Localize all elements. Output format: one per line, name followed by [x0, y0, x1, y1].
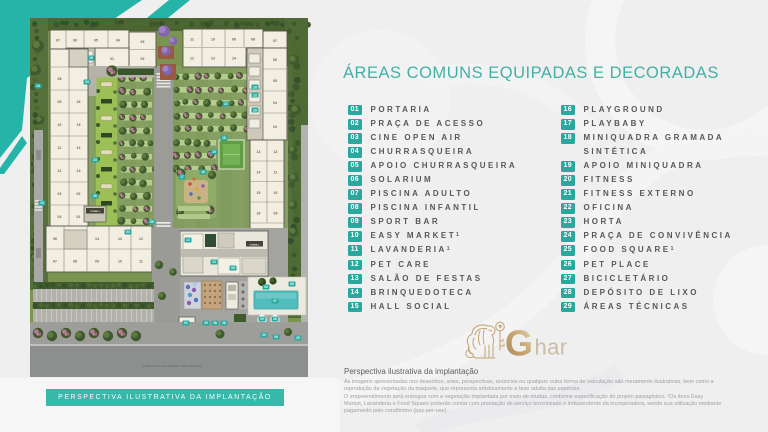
svg-text:07: 07	[273, 299, 277, 303]
svg-text:18: 18	[222, 136, 226, 140]
svg-text:TORRE 3: TORRE 3	[90, 211, 100, 213]
svg-text:13: 13	[257, 150, 261, 154]
svg-text:G: G	[505, 323, 533, 364]
svg-text:01: 01	[110, 57, 114, 61]
svg-text:14: 14	[36, 84, 40, 88]
svg-text:03: 03	[273, 125, 277, 129]
svg-text:04: 04	[58, 215, 62, 219]
svg-text:09: 09	[95, 260, 99, 264]
svg-text:26: 26	[93, 194, 97, 198]
svg-text:02: 02	[77, 192, 81, 196]
svg-text:17: 17	[180, 175, 184, 179]
svg-text:06: 06	[273, 58, 277, 62]
svg-text:TORRE 2: TORRE 2	[250, 244, 260, 246]
svg-text:26: 26	[273, 317, 277, 321]
svg-text:12: 12	[139, 237, 143, 241]
svg-text:09: 09	[232, 38, 236, 42]
svg-text:20: 20	[260, 317, 264, 321]
svg-text:09: 09	[274, 212, 278, 216]
svg-text:11: 11	[274, 171, 278, 175]
svg-text:29: 29	[262, 333, 266, 337]
svg-text:11: 11	[190, 38, 194, 42]
svg-text:29: 29	[204, 321, 208, 325]
svg-text:03: 03	[85, 80, 89, 84]
svg-text:13: 13	[40, 201, 44, 205]
svg-text:11: 11	[58, 146, 62, 150]
svg-text:10: 10	[211, 38, 215, 42]
svg-text:10: 10	[274, 191, 278, 195]
svg-text:05: 05	[273, 79, 277, 83]
svg-text:14: 14	[77, 146, 81, 150]
svg-text:15: 15	[257, 191, 261, 195]
svg-text:01: 01	[77, 215, 81, 219]
svg-text:12: 12	[190, 57, 194, 61]
svg-text:08: 08	[73, 260, 77, 264]
svg-text:15: 15	[77, 123, 81, 127]
svg-text:15: 15	[89, 56, 93, 60]
svg-text:05: 05	[231, 266, 235, 270]
svg-text:10: 10	[58, 123, 62, 127]
svg-text:08: 08	[290, 282, 294, 286]
svg-text:03: 03	[58, 192, 62, 196]
svg-text:13: 13	[77, 169, 81, 173]
svg-text:04: 04	[273, 101, 277, 105]
svg-text:03: 03	[141, 40, 145, 44]
svg-text:23: 23	[93, 158, 97, 162]
svg-text:08: 08	[58, 77, 62, 81]
svg-text:09: 09	[58, 100, 62, 104]
svg-text:19: 19	[212, 150, 216, 154]
svg-text:01: 01	[184, 321, 188, 325]
svg-text:28: 28	[222, 321, 226, 325]
svg-text:10: 10	[118, 260, 122, 264]
svg-text:14: 14	[95, 237, 99, 241]
svg-text:21: 21	[224, 102, 228, 106]
svg-text:05: 05	[150, 220, 154, 224]
svg-text:07: 07	[56, 39, 60, 43]
svg-text:14: 14	[232, 57, 236, 61]
svg-text:12: 12	[212, 260, 216, 264]
svg-text:04: 04	[264, 285, 268, 289]
svg-text:12: 12	[58, 169, 62, 173]
svg-text:04: 04	[116, 39, 120, 43]
svg-text:11: 11	[139, 260, 143, 264]
svg-text:13: 13	[186, 238, 190, 242]
svg-text:20: 20	[253, 108, 257, 112]
svg-text:har: har	[535, 335, 568, 360]
svg-text:16: 16	[77, 100, 81, 104]
svg-text:10: 10	[253, 85, 257, 89]
svg-text:28: 28	[213, 321, 217, 325]
svg-text:14: 14	[257, 171, 261, 175]
svg-text:AVENIDA ALEXANDRE MACKENZIE: AVENIDA ALEXANDRE MACKENZIE	[142, 364, 201, 368]
svg-text:02: 02	[141, 57, 145, 61]
svg-text:13: 13	[118, 237, 122, 241]
svg-text:13: 13	[211, 57, 215, 61]
svg-text:04: 04	[126, 230, 130, 234]
svg-text:07: 07	[53, 260, 57, 264]
svg-text:06: 06	[53, 237, 57, 241]
svg-text:07: 07	[273, 39, 277, 43]
svg-text:12: 12	[274, 150, 278, 154]
svg-text:16: 16	[257, 212, 261, 216]
svg-text:06: 06	[73, 39, 77, 43]
svg-text:29: 29	[296, 336, 300, 340]
svg-text:16: 16	[201, 170, 205, 174]
svg-text:05: 05	[94, 39, 98, 43]
svg-text:08: 08	[251, 38, 255, 42]
svg-text:26: 26	[274, 335, 278, 339]
svg-text:22: 22	[253, 93, 257, 97]
